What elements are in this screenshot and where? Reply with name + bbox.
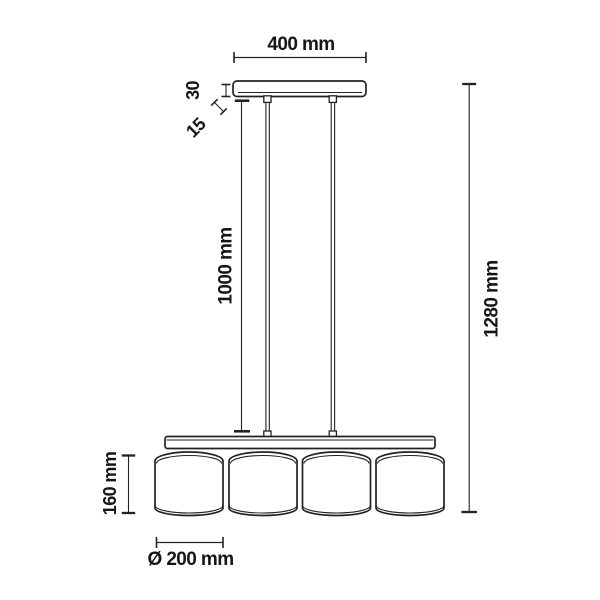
dim-overall-height: 1280 mm bbox=[462, 84, 503, 512]
lampshade-4 bbox=[376, 452, 444, 516]
dim-canopy-gap: 15 bbox=[182, 99, 227, 141]
dim-cord-length: 1000 mm bbox=[216, 101, 251, 432]
ceiling-canopy bbox=[233, 81, 366, 97]
lampshade-3 bbox=[303, 452, 371, 516]
suspension-cable-right bbox=[329, 96, 336, 438]
dim-shade-height: 160 mm bbox=[100, 452, 135, 515]
dim-label-canopy-gap: 15 bbox=[182, 114, 210, 142]
dim-label-cord-length: 1000 mm bbox=[216, 227, 237, 304]
dim-line bbox=[214, 102, 223, 111]
cable-gland-top bbox=[329, 96, 336, 103]
lamp-bar bbox=[165, 437, 435, 449]
canopy-outline bbox=[233, 81, 366, 97]
lampshade-1 bbox=[155, 452, 223, 516]
shade-body bbox=[376, 452, 444, 516]
lampshade-2 bbox=[229, 452, 297, 516]
technical-drawing: 400 mm 30 15 bbox=[0, 0, 600, 600]
dim-label-shade-diameter: Ø 200 mm bbox=[147, 549, 233, 570]
dim-label-overall-height: 1280 mm bbox=[482, 260, 503, 337]
dim-ibeam bbox=[211, 99, 227, 115]
dim-label-canopy-height: 30 bbox=[183, 81, 203, 100]
cable bbox=[266, 102, 269, 432]
shade-body bbox=[303, 452, 371, 516]
cable bbox=[331, 102, 334, 432]
dim-label-canopy-width: 400 mm bbox=[267, 34, 334, 55]
dim-canopy-width: 400 mm bbox=[234, 34, 366, 63]
dim-canopy-height: 30 bbox=[183, 81, 231, 100]
bar-outline bbox=[165, 437, 435, 449]
suspension-cable-left bbox=[264, 96, 271, 438]
dim-label-shade-height: 160 mm bbox=[100, 452, 120, 515]
cable-gland-top bbox=[264, 96, 271, 103]
shade-body bbox=[229, 452, 297, 516]
shade-body bbox=[155, 452, 223, 516]
dim-shade-diameter: Ø 200 mm bbox=[147, 537, 233, 570]
pendant-lamp-dimension-diagram: 400 mm 30 15 bbox=[0, 0, 600, 600]
